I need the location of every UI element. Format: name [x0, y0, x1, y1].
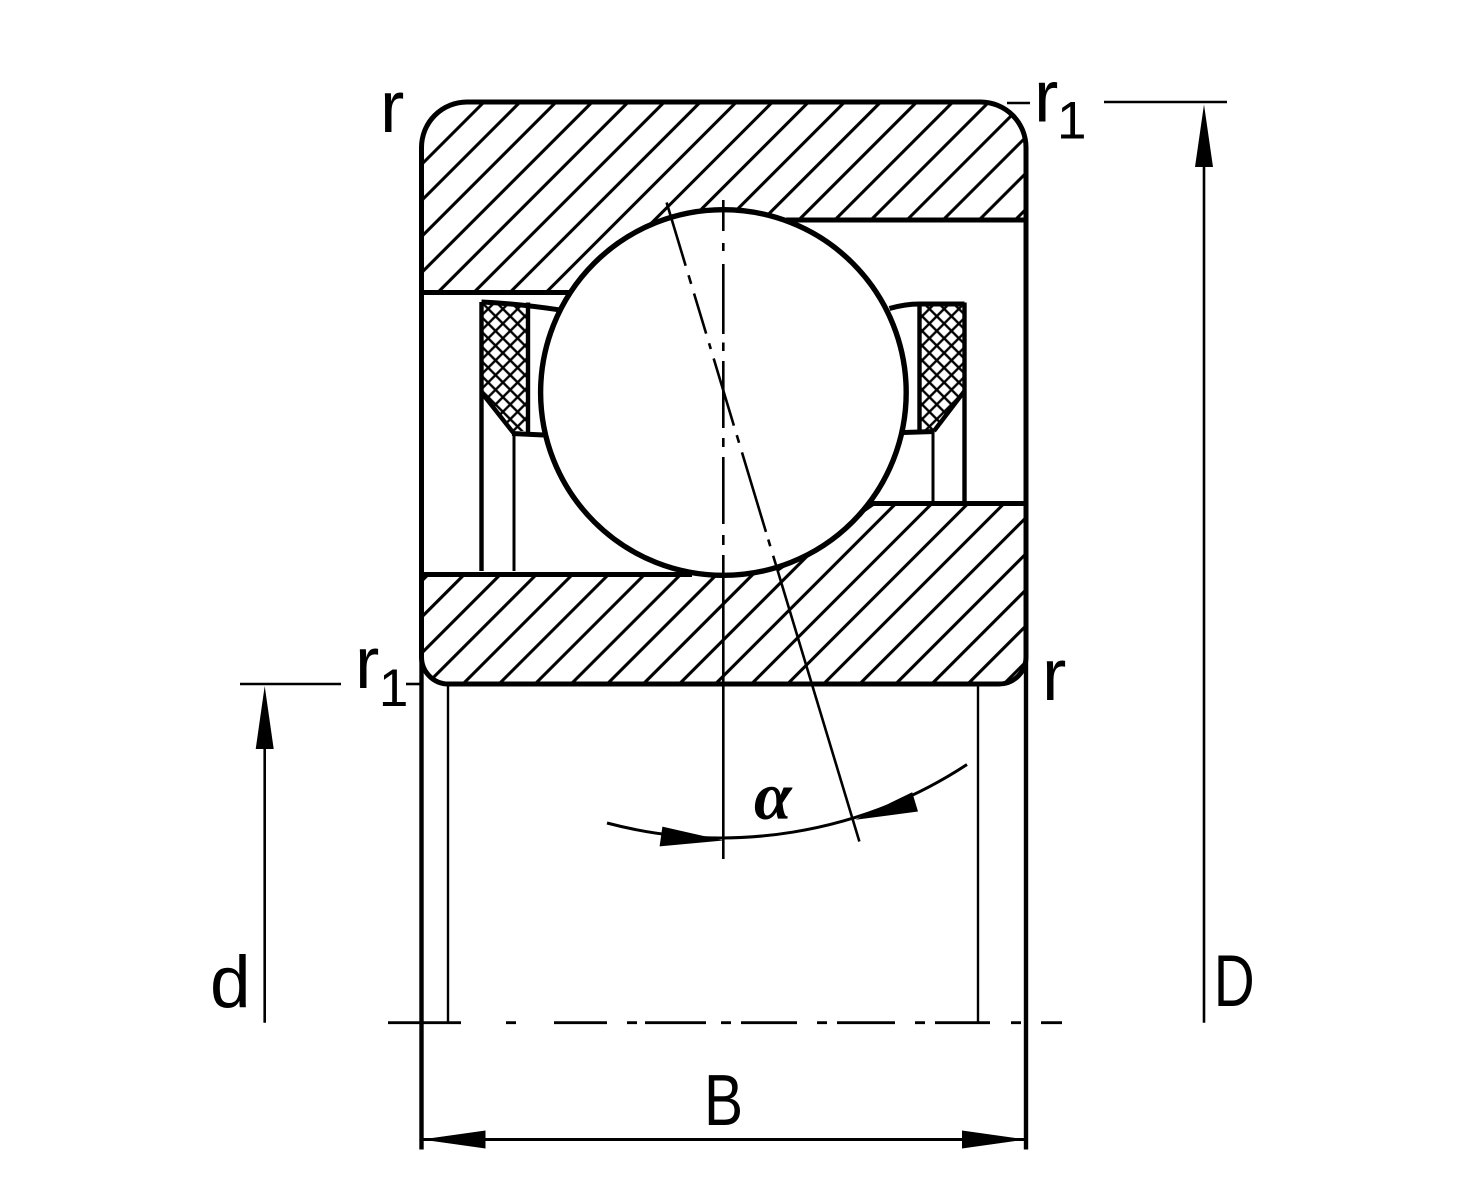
svg-text:α: α	[754, 758, 793, 834]
svg-text:1: 1	[379, 659, 408, 718]
svg-text:r: r	[355, 623, 379, 704]
svg-text:r: r	[380, 67, 404, 148]
svg-text:B: B	[704, 1061, 743, 1141]
svg-text:d: d	[210, 942, 251, 1023]
svg-text:r: r	[1042, 635, 1066, 716]
svg-text:1: 1	[1057, 92, 1086, 151]
svg-text:D: D	[1214, 941, 1255, 1022]
svg-text:r: r	[1034, 57, 1058, 138]
